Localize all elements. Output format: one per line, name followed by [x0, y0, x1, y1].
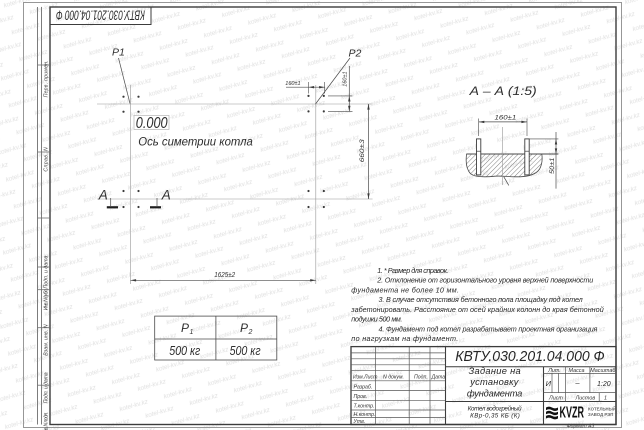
svg-text:Котел водогрейный: Котел водогрейный — [468, 405, 522, 412]
svg-text:Лит.: Лит. — [547, 368, 561, 374]
svg-text:забетонировать. Расстояние от: забетонировать. Расстояние от осей крайн… — [350, 305, 603, 314]
svg-text:Взам. инв. N: Взам. инв. N — [43, 324, 49, 356]
svg-text:Задание на: Задание на — [469, 366, 521, 376]
svg-text:Подп. и дата: Подп. и дата — [43, 372, 49, 403]
svg-text:P: P — [181, 321, 189, 335]
svg-text:3. В случае отсутствия бетонно: 3. В случае отсутствия бетонного пола пл… — [379, 295, 583, 304]
svg-text:Т.контр.: Т.контр. — [354, 404, 375, 410]
svg-text:Листов: Листов — [575, 396, 596, 402]
svg-text:ЗАВОД РЭП: ЗАВОД РЭП — [588, 412, 613, 417]
svg-text:1:20: 1:20 — [597, 381, 611, 388]
svg-text:Формат А3: Формат А3 — [567, 424, 596, 430]
svg-text:A: A — [98, 187, 108, 202]
svg-text:1. * Размер для справок.: 1. * Размер для справок. — [377, 266, 448, 275]
svg-text:0.000: 0.000 — [136, 115, 168, 132]
svg-text:Инв. N подл.: Инв. N подл. — [43, 412, 49, 430]
svg-text:фундамента: фундамента — [467, 389, 522, 399]
svg-text:Масштаб: Масштаб — [590, 368, 616, 374]
svg-text:Справ. N: Справ. N — [43, 147, 49, 172]
svg-text:КВТУ.030.201.04.000 Ф: КВТУ.030.201.04.000 Ф — [455, 349, 604, 365]
svg-text:KVZR: KVZR — [560, 405, 585, 422]
svg-text:установку: установку — [469, 377, 519, 387]
svg-text:1625±2: 1625±2 — [214, 272, 235, 279]
svg-text:Перв. примен.: Перв. примен. — [43, 60, 49, 97]
svg-text:КОТЕЛЬНЫЙ: КОТЕЛЬНЫЙ — [588, 407, 616, 412]
svg-text:500 кг: 500 кг — [169, 344, 200, 358]
svg-text:Дата: Дата — [431, 375, 446, 381]
svg-text:Лист: Лист — [548, 396, 563, 402]
svg-text:Н.контр.: Н.контр. — [354, 412, 376, 418]
svg-text:160±1: 160±1 — [285, 81, 300, 87]
svg-text:Подп.: Подп. — [414, 375, 428, 381]
svg-text:50±1: 50±1 — [549, 157, 556, 174]
svg-text:P: P — [240, 321, 248, 335]
svg-text:Масса: Масса — [569, 368, 585, 374]
svg-text:–: – — [574, 378, 580, 387]
svg-text:Утв.: Утв. — [354, 419, 366, 425]
svg-text:2: 2 — [248, 329, 253, 336]
svg-text:И: И — [546, 379, 552, 388]
svg-text:по нагрузкам на фундамент.: по нагрузкам на фундамент. — [351, 334, 458, 343]
svg-text:1: 1 — [604, 396, 607, 402]
svg-text:Пров.: Пров. — [354, 394, 368, 400]
svg-text:160±1: 160±1 — [342, 71, 348, 86]
svg-text:КВТУ.030.201.04.000 Ф: КВТУ.030.201.04.000 Ф — [56, 8, 145, 24]
svg-text:А – А (1:5): А – А (1:5) — [469, 84, 537, 98]
svg-text:Изм.Лист: Изм.Лист — [353, 375, 378, 381]
svg-text:Инв. N дубл.: Инв. N дубл. — [43, 289, 49, 311]
svg-text:Подп. и дата: Подп. и дата — [43, 255, 49, 288]
svg-text:Ось симетрии котла: Ось симетрии котла — [138, 134, 253, 148]
svg-text:500 кг: 500 кг — [230, 344, 261, 358]
svg-text:P1: P1 — [112, 47, 125, 59]
svg-text:2. Отклонение от горизонтально: 2. Отклонение от горизонтального уровня … — [376, 275, 593, 284]
svg-text:Разраб.: Разраб. — [354, 384, 373, 390]
svg-text:КВр-0,35 КБ (К): КВр-0,35 КБ (К) — [470, 413, 520, 420]
svg-text:A: A — [161, 187, 171, 202]
svg-text:1: 1 — [190, 329, 194, 336]
svg-text:660±3: 660±3 — [359, 139, 366, 162]
svg-text:подушки 500 мм.: подушки 500 мм. — [351, 315, 402, 324]
svg-text:4. Фундамент под котел разраба: 4. Фундамент под котел разрабатывает про… — [379, 324, 598, 333]
svg-text:160±1: 160±1 — [495, 115, 517, 122]
svg-text:N докум.: N докум. — [383, 375, 404, 381]
svg-text:P2: P2 — [349, 48, 362, 60]
svg-text:фундамента не более 10 мм.: фундамента не более 10 мм. — [351, 285, 459, 294]
